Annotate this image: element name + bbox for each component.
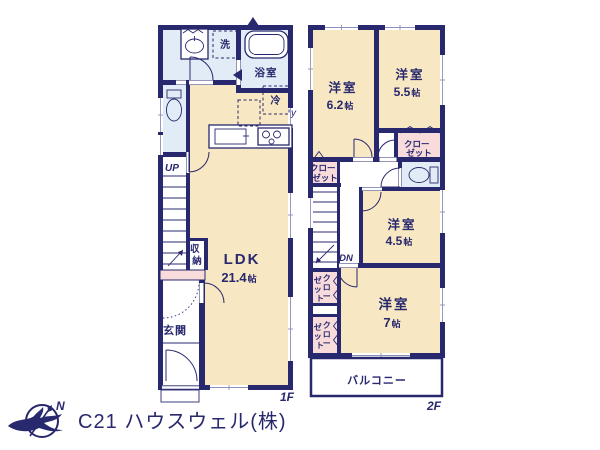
floorplan-drawing: 洗 浴室 冷 UP 収 納 LDK 21.4帖 玄関 1F y xyxy=(0,0,600,450)
window-ldk-right-lower xyxy=(288,297,293,361)
room-7-label: 洋室 xyxy=(379,296,410,312)
window-6-2-top xyxy=(325,25,358,30)
room-6-2-label: 洋室 xyxy=(328,80,357,95)
room-4-5-label: 洋室 xyxy=(387,217,416,232)
bath-label: 浴室 xyxy=(255,66,278,79)
balcony-label: バルコニー xyxy=(347,374,407,387)
window-7-right xyxy=(440,288,445,322)
toilet-room-1f xyxy=(163,85,186,152)
window-6-2-left xyxy=(308,48,313,90)
window-stairs-left xyxy=(158,135,163,155)
window-ldk-bottom xyxy=(210,385,248,390)
company-name: C21 ハウスウェル(株) xyxy=(78,410,287,433)
room-5-5-size: 5.5帖 xyxy=(394,85,421,99)
room-5-5-label: 洋室 xyxy=(395,67,424,82)
laundry-label: 洗 xyxy=(220,38,231,51)
kitchen-counter-icon xyxy=(209,125,292,148)
window-5-5-right xyxy=(440,55,445,105)
stairs-up-label: UP xyxy=(165,163,179,174)
stairs-2f xyxy=(313,192,337,263)
porch xyxy=(161,390,199,402)
under-stair-closet xyxy=(160,270,205,280)
bathtub-icon xyxy=(245,31,288,58)
stairs-down-label2: DN xyxy=(339,253,354,264)
window-5-5-top xyxy=(385,25,415,30)
stairs-1f xyxy=(163,176,186,266)
floor2-floor-label: 2F xyxy=(426,399,442,413)
ldk-label: LDK xyxy=(224,251,261,268)
window-ldk-right-upper xyxy=(288,193,293,238)
window-4-5-right xyxy=(440,190,445,233)
vanity-sink-icon xyxy=(181,29,208,59)
bath-vent-mark xyxy=(247,17,259,26)
floor1-floor-label: 1F xyxy=(280,390,295,404)
fridge-label: 冷 xyxy=(271,94,282,107)
wall-annotation-y: y xyxy=(290,108,297,119)
floorplan-page: 洗 浴室 冷 UP 収 納 LDK 21.4帖 玄関 1F y xyxy=(0,0,600,450)
compass-icon xyxy=(8,405,63,437)
entrance-label: 玄関 xyxy=(163,323,187,337)
floor2-plan: 洋室 6.2帖 洋室 5.5帖 クロー ゼット クロー ゼット 洋室 4.5帖 … xyxy=(308,25,445,413)
compass-north-label: N xyxy=(56,399,65,413)
footer: N C21 ハウスウェル(株) xyxy=(8,399,287,437)
floor1-plan: 洗 浴室 冷 UP 収 納 LDK 21.4帖 玄関 1F y xyxy=(158,17,297,404)
window-toilet-left xyxy=(158,98,163,132)
room-6-2-size: 6.2帖 xyxy=(327,98,354,112)
room-4-5-size: 4.5帖 xyxy=(386,234,413,248)
window-stairs-2f-left xyxy=(308,198,313,228)
